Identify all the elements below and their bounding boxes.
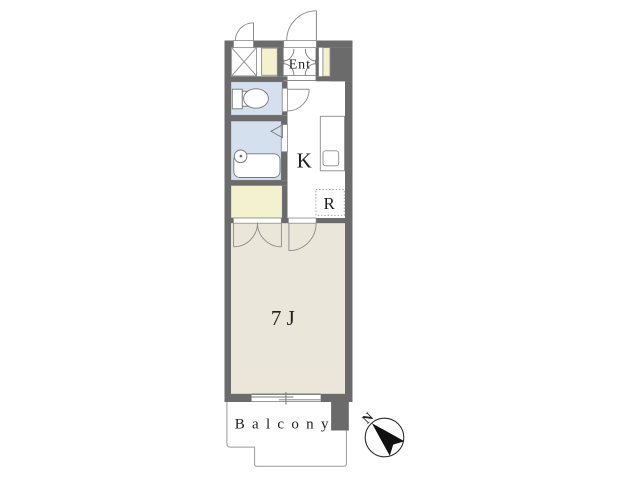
svg-text:Balcony: Balcony <box>235 417 336 433</box>
svg-text:R: R <box>324 194 336 213</box>
svg-text:7 J: 7 J <box>271 306 295 330</box>
svg-text:Ent: Ent <box>289 58 311 73</box>
svg-text:K: K <box>297 148 312 172</box>
